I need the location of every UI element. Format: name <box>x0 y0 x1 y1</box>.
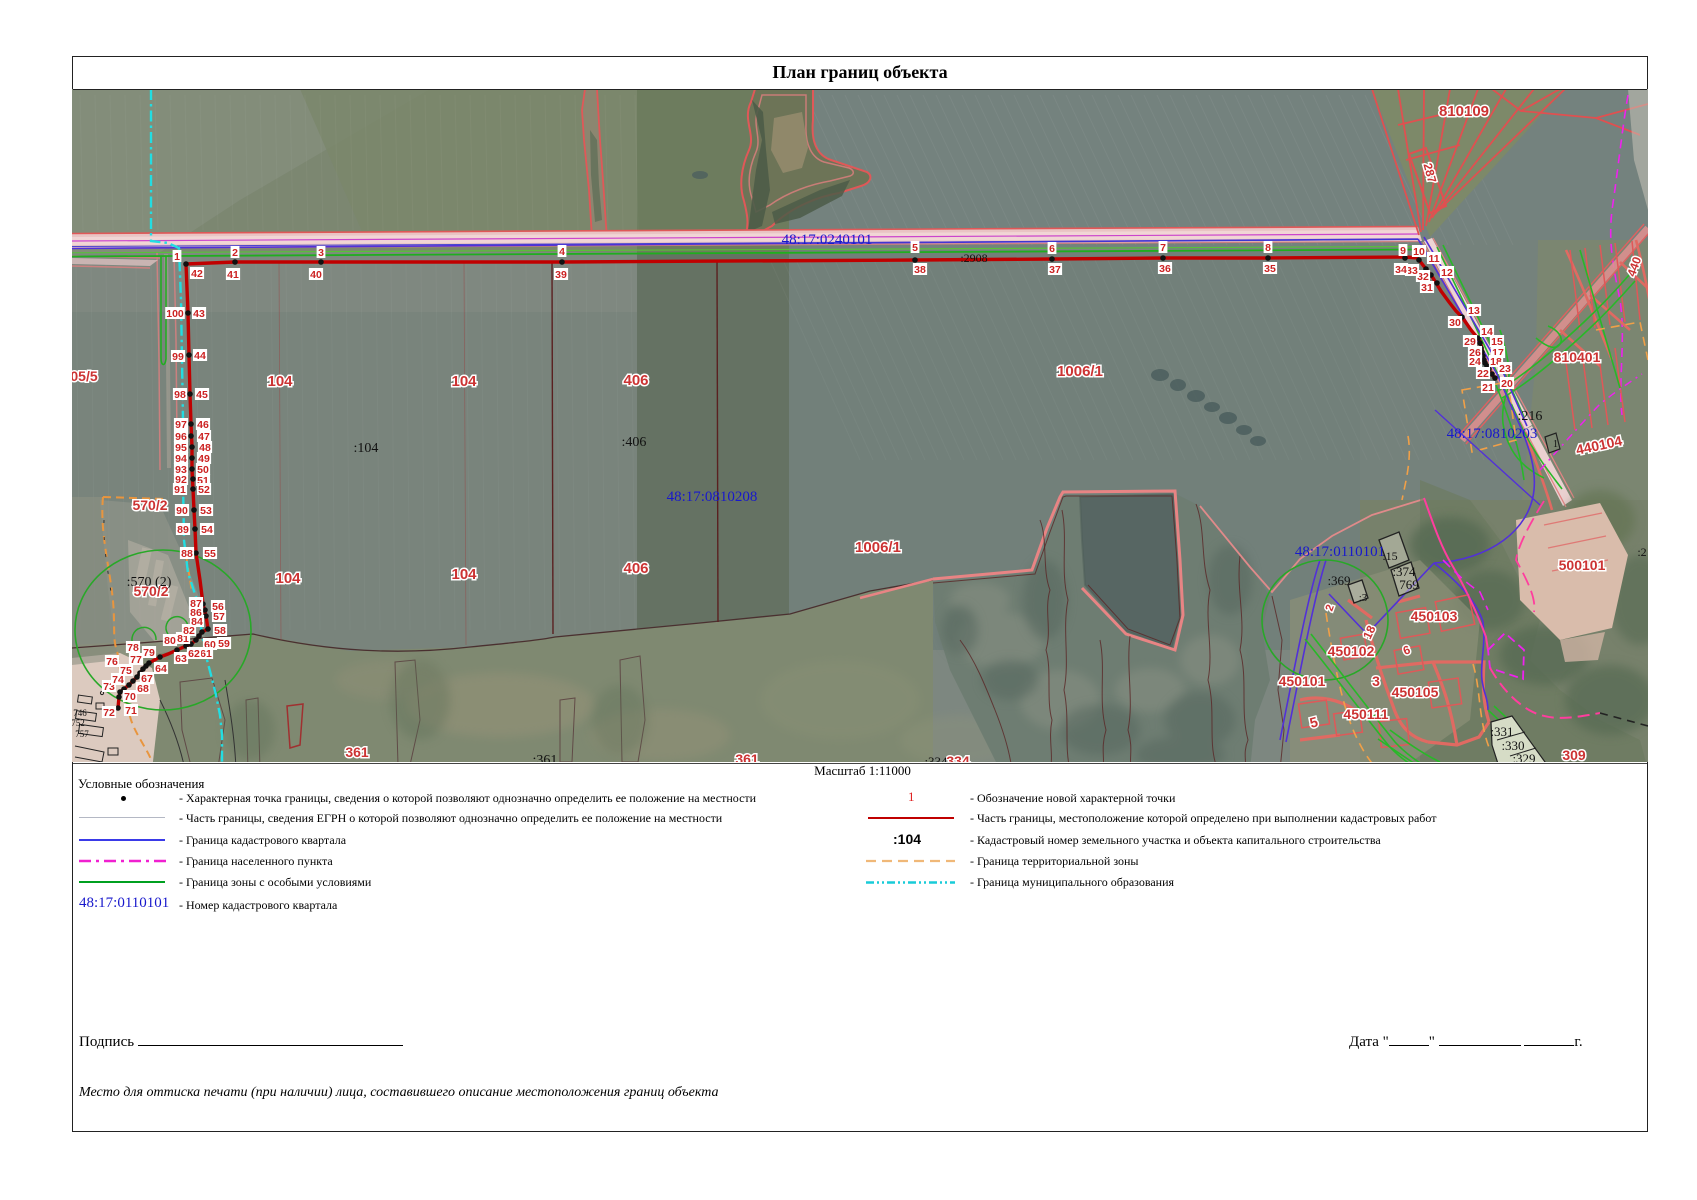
svg-text:39: 39 <box>555 269 567 281</box>
svg-text:37: 37 <box>1049 264 1061 276</box>
svg-text:48:17:0110101: 48:17:0110101 <box>1295 544 1385 560</box>
svg-text::2908: :2908 <box>960 251 987 265</box>
svg-text:55: 55 <box>204 548 216 560</box>
svg-text:52: 52 <box>198 484 210 496</box>
svg-text:104: 104 <box>275 570 301 587</box>
svg-text:769: 769 <box>1399 577 1419 592</box>
svg-text:77: 77 <box>130 654 142 666</box>
svg-text:361: 361 <box>735 751 759 762</box>
svg-text:78: 78 <box>127 642 139 654</box>
svg-text:44: 44 <box>194 350 206 362</box>
svg-text:38: 38 <box>914 264 926 276</box>
svg-text::104: :104 <box>354 441 379 456</box>
svg-text:810109: 810109 <box>1439 103 1489 120</box>
svg-text::361: :361 <box>533 753 558 762</box>
svg-text:96: 96 <box>175 431 187 443</box>
svg-text::331: :331 <box>1490 724 1513 739</box>
svg-text:68: 68 <box>137 683 149 695</box>
svg-text:21: 21 <box>1482 382 1494 394</box>
svg-text:63: 63 <box>175 653 187 665</box>
svg-text:29: 29 <box>1464 336 1476 348</box>
svg-text:450103: 450103 <box>1411 608 1458 624</box>
svg-text:104: 104 <box>267 373 293 390</box>
svg-text:810401: 810401 <box>1554 349 1601 365</box>
svg-text:22: 22 <box>1477 368 1489 380</box>
svg-text:104: 104 <box>451 373 477 390</box>
svg-text:45: 45 <box>196 389 208 401</box>
svg-text:9: 9 <box>1400 245 1406 257</box>
svg-text:94: 94 <box>175 453 187 465</box>
svg-text:98: 98 <box>174 389 186 401</box>
svg-text:59: 59 <box>218 638 230 650</box>
svg-text:30: 30 <box>1449 317 1461 329</box>
svg-text:26: 26 <box>1469 347 1481 359</box>
svg-text:34: 34 <box>1395 264 1407 276</box>
svg-text:61: 61 <box>200 648 212 660</box>
svg-text:406: 406 <box>623 560 648 577</box>
svg-text:570/2: 570/2 <box>132 497 167 513</box>
svg-text:62: 62 <box>188 648 200 660</box>
svg-text:54: 54 <box>201 524 213 536</box>
svg-text:53: 53 <box>200 505 212 517</box>
svg-text:13: 13 <box>1468 305 1480 317</box>
svg-text:89: 89 <box>177 524 189 536</box>
svg-text::570 (2): :570 (2) <box>127 575 172 590</box>
svg-text:42: 42 <box>191 268 203 280</box>
svg-text:10: 10 <box>1413 246 1425 258</box>
svg-text::2: :2 <box>1637 545 1646 559</box>
svg-text:36: 36 <box>1159 263 1171 275</box>
svg-text:746: 746 <box>73 708 87 718</box>
svg-text:58: 58 <box>214 625 226 637</box>
svg-text:5: 5 <box>912 242 918 254</box>
svg-text:97: 97 <box>175 419 187 431</box>
svg-text:757: 757 <box>75 729 89 739</box>
svg-text:450111: 450111 <box>1343 706 1388 722</box>
svg-text:75: 75 <box>120 665 132 677</box>
svg-text:1: 1 <box>174 251 180 263</box>
svg-text:3: 3 <box>1372 673 1380 689</box>
svg-text:43: 43 <box>193 308 205 320</box>
svg-text:41: 41 <box>227 269 239 281</box>
svg-text:76: 76 <box>106 656 118 668</box>
svg-text:35: 35 <box>1264 263 1276 275</box>
svg-text:8: 8 <box>1265 242 1271 254</box>
svg-text::216: :216 <box>1518 409 1543 424</box>
svg-text:95: 95 <box>175 442 187 454</box>
svg-text:05/5: 05/5 <box>72 368 98 384</box>
svg-text:752: 752 <box>72 718 85 728</box>
svg-text:23: 23 <box>1499 363 1511 375</box>
svg-text:11: 11 <box>1428 253 1439 265</box>
svg-text:1: 1 <box>1553 439 1558 450</box>
svg-text::3: :3 <box>1359 592 1368 604</box>
svg-text:99: 99 <box>172 351 184 363</box>
svg-text:500101: 500101 <box>1559 557 1606 573</box>
svg-text:93: 93 <box>175 464 187 476</box>
svg-text:450102: 450102 <box>1328 643 1375 659</box>
svg-text:48:17:0810208: 48:17:0810208 <box>667 489 758 505</box>
svg-text:72: 72 <box>103 707 115 719</box>
svg-text:1006/1: 1006/1 <box>1057 363 1103 380</box>
svg-text:12: 12 <box>1441 267 1453 279</box>
svg-text:334: 334 <box>946 753 970 762</box>
svg-text:3: 3 <box>318 247 324 259</box>
svg-text:450101: 450101 <box>1279 673 1326 689</box>
svg-text:79: 79 <box>143 647 155 659</box>
svg-text:46: 46 <box>197 419 209 431</box>
svg-text:48:17:0240101: 48:17:0240101 <box>782 232 873 248</box>
svg-text:57: 57 <box>213 611 225 623</box>
svg-text:64: 64 <box>155 663 167 675</box>
svg-text:70: 70 <box>124 691 136 703</box>
svg-text:450105: 450105 <box>1392 684 1439 700</box>
svg-text:1006/1: 1006/1 <box>855 539 901 556</box>
svg-text:104: 104 <box>451 566 477 583</box>
svg-text:7: 7 <box>1160 242 1166 254</box>
svg-text:90: 90 <box>176 505 188 517</box>
svg-text:80: 80 <box>164 635 176 647</box>
svg-text:48:17:0810203: 48:17:0810203 <box>1447 426 1538 442</box>
svg-text::329: :329 <box>1512 751 1535 762</box>
svg-text:2: 2 <box>232 247 238 259</box>
svg-text:309: 309 <box>1562 747 1586 762</box>
svg-text:40: 40 <box>310 269 322 281</box>
svg-text:31: 31 <box>1421 282 1433 294</box>
svg-text:71: 71 <box>125 705 137 717</box>
svg-text::334: :334 <box>924 754 948 762</box>
svg-text::15: :15 <box>1382 549 1397 563</box>
svg-text::406: :406 <box>622 435 647 450</box>
svg-text:406: 406 <box>623 372 648 389</box>
svg-text:88: 88 <box>181 548 193 560</box>
svg-text:361: 361 <box>345 744 369 760</box>
svg-text:4: 4 <box>559 246 565 258</box>
svg-text:87: 87 <box>190 598 202 610</box>
svg-text:20: 20 <box>1501 378 1513 390</box>
svg-text:6: 6 <box>1049 243 1055 255</box>
svg-text::369: :369 <box>1327 573 1350 588</box>
svg-text:100: 100 <box>166 308 184 320</box>
